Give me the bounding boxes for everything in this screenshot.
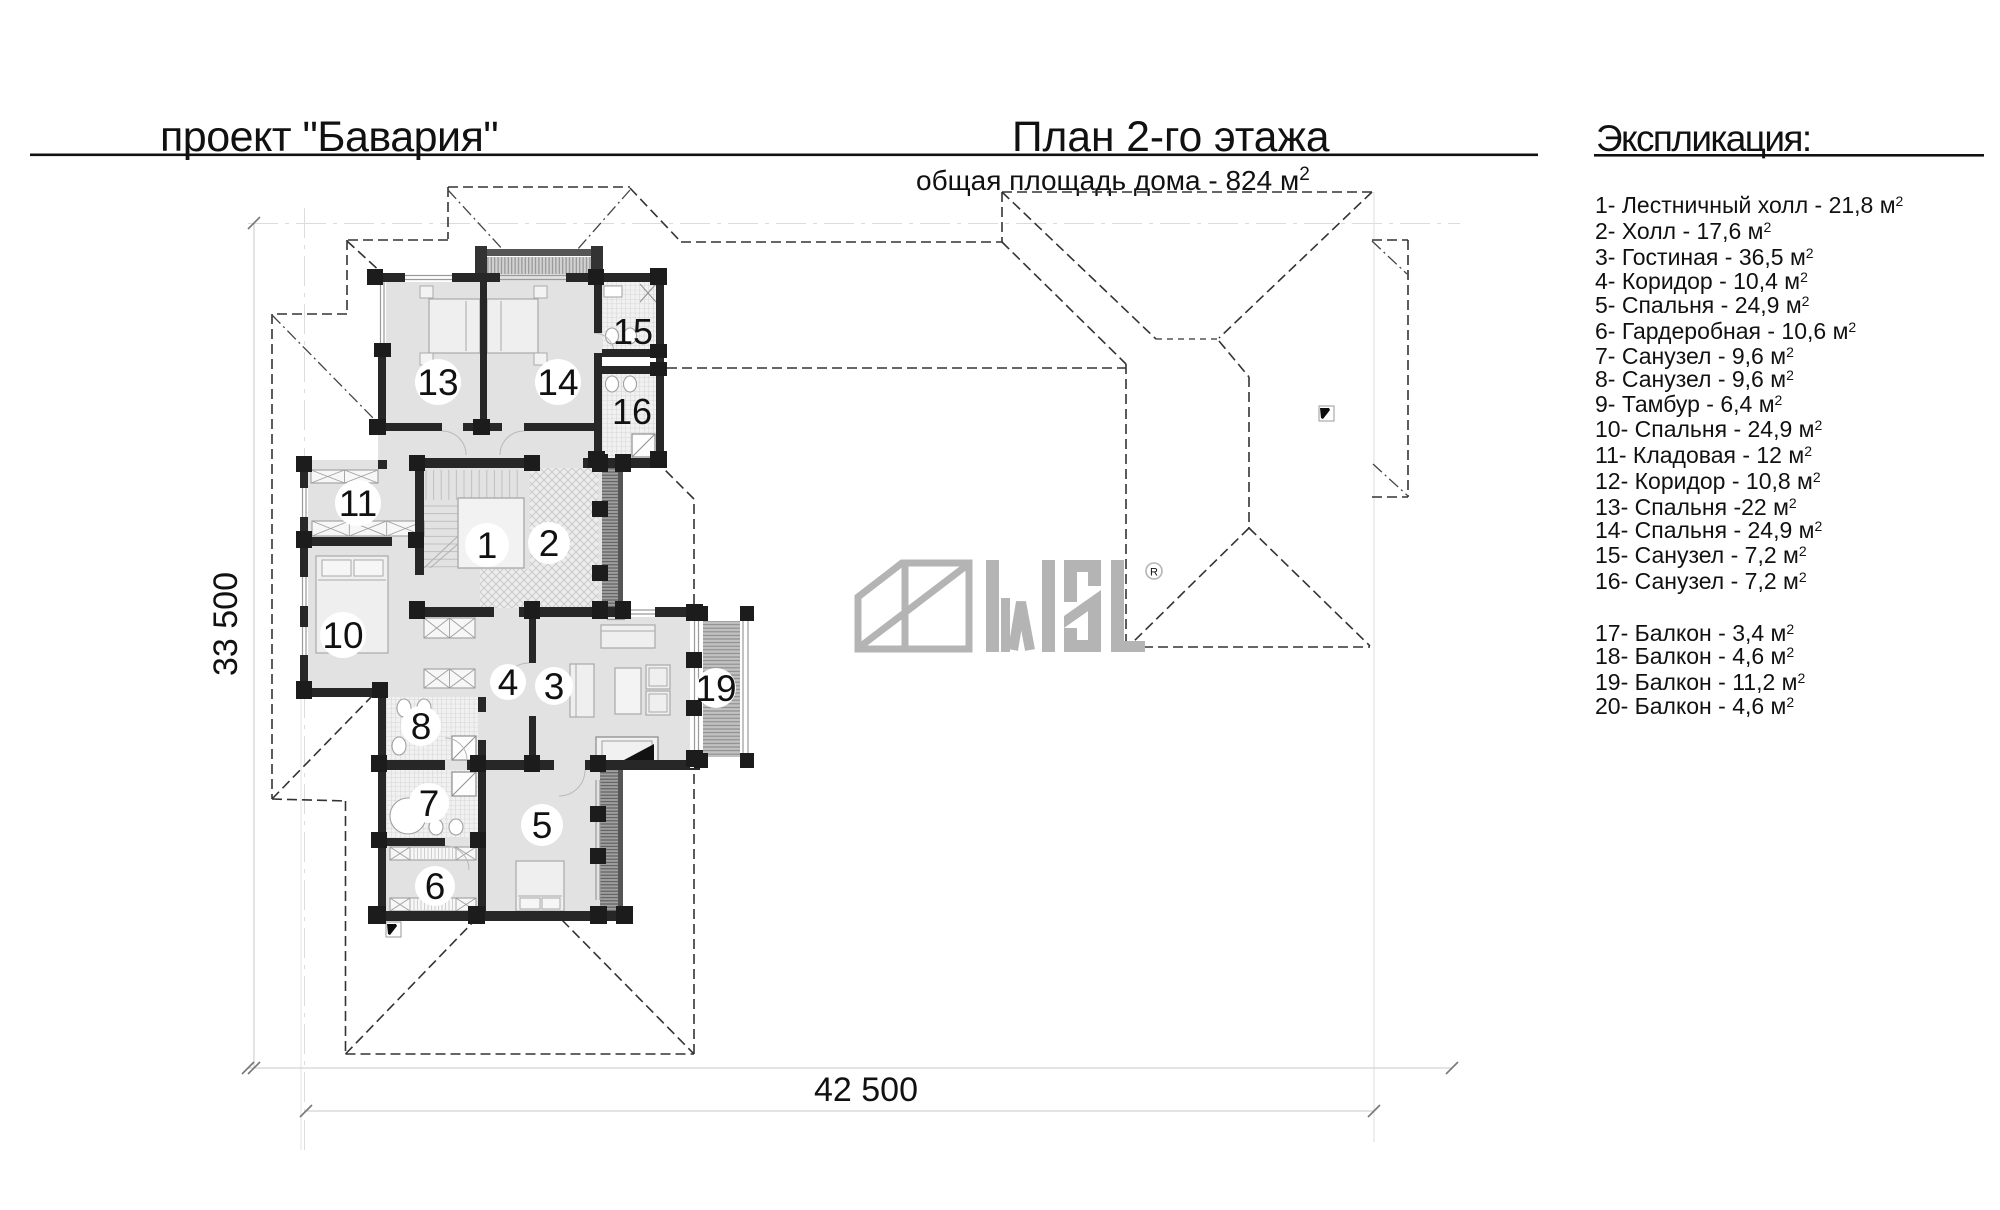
svg-text:1: 1 bbox=[477, 525, 498, 566]
svg-text:19: 19 bbox=[695, 668, 736, 709]
svg-text:10- Спальня - 24,9 м2: 10- Спальня - 24,9 м2 bbox=[1595, 416, 1822, 442]
svg-text:16: 16 bbox=[612, 391, 652, 432]
svg-text:6- Гардеробная - 10,6 м2: 6- Гардеробная - 10,6 м2 bbox=[1595, 318, 1856, 344]
svg-text:42 500: 42 500 bbox=[814, 1071, 918, 1109]
svg-text:2: 2 bbox=[539, 523, 560, 564]
svg-text:1- Лестничный холл - 21,8 м2: 1- Лестничный холл - 21,8 м2 bbox=[1595, 192, 1904, 218]
svg-text:4- Коридор - 10,4 м2: 4- Коридор - 10,4 м2 bbox=[1595, 268, 1808, 294]
svg-text:19- Балкон - 11,2 м2: 19- Балкон - 11,2 м2 bbox=[1595, 669, 1805, 695]
svg-text:11: 11 bbox=[339, 483, 377, 524]
svg-text:9- Тамбур - 6,4 м2: 9- Тамбур - 6,4 м2 bbox=[1595, 391, 1783, 417]
svg-text:13: 13 bbox=[417, 362, 458, 403]
svg-text:12- Коридор - 10,8 м2: 12- Коридор - 10,8 м2 bbox=[1595, 468, 1821, 494]
svg-text:5- Спальня - 24,9 м2: 5- Спальня - 24,9 м2 bbox=[1595, 292, 1810, 318]
svg-text:33 500: 33 500 bbox=[207, 572, 245, 676]
svg-text:16- Санузел - 7,2 м2: 16- Санузел - 7,2 м2 bbox=[1595, 568, 1807, 594]
svg-text:8- Санузел - 9,6 м2: 8- Санузел - 9,6 м2 bbox=[1595, 366, 1794, 392]
svg-text:14: 14 bbox=[537, 362, 578, 403]
svg-text:4: 4 bbox=[498, 662, 519, 703]
svg-text:8: 8 bbox=[411, 706, 432, 747]
svg-text:3- Гостиная - 36,5 м2: 3- Гостиная - 36,5 м2 bbox=[1595, 244, 1814, 270]
svg-text:R: R bbox=[1150, 567, 1158, 579]
svg-text:6: 6 bbox=[425, 866, 446, 907]
svg-text:2- Холл - 17,6 м2: 2- Холл - 17,6 м2 bbox=[1595, 218, 1771, 244]
svg-text:15- Санузел - 7,2 м2: 15- Санузел - 7,2 м2 bbox=[1595, 542, 1807, 568]
svg-text:11- Кладовая - 12 м2: 11- Кладовая - 12 м2 bbox=[1595, 442, 1812, 468]
svg-text:20- Балкон - 4,6 м2: 20- Балкон - 4,6 м2 bbox=[1595, 693, 1794, 719]
svg-text:5: 5 bbox=[532, 805, 553, 846]
svg-text:Экспликация:: Экспликация: bbox=[1596, 118, 1811, 159]
svg-text:3: 3 bbox=[544, 666, 565, 707]
svg-text:14- Спальня - 24,9 м2: 14- Спальня - 24,9 м2 bbox=[1595, 517, 1822, 543]
svg-text:План 2-го этажа: План 2-го этажа bbox=[1012, 114, 1330, 161]
svg-text:7: 7 bbox=[419, 783, 440, 824]
svg-text:10: 10 bbox=[322, 615, 363, 656]
svg-text:18- Балкон - 4,6 м2: 18- Балкон - 4,6 м2 bbox=[1595, 643, 1794, 669]
svg-text:15: 15 bbox=[613, 311, 653, 352]
